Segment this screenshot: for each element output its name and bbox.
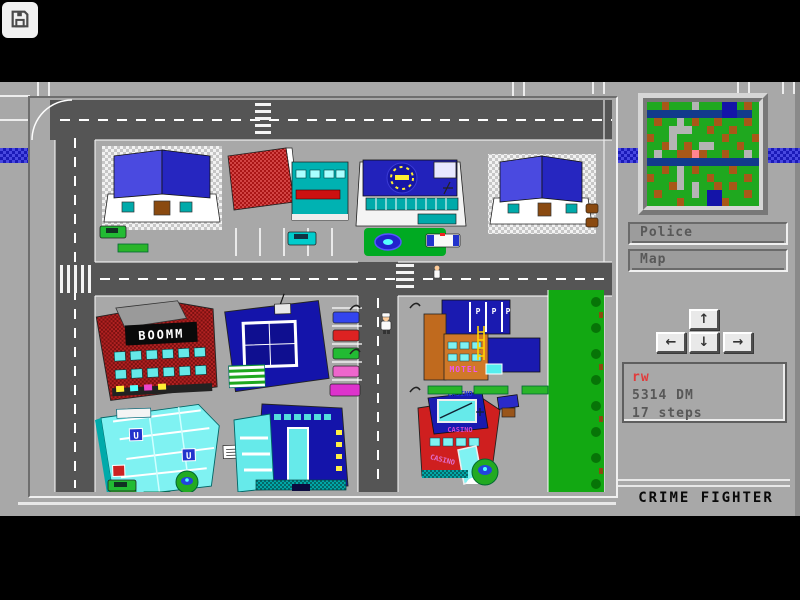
- parking-marker: P: [476, 307, 481, 316]
- building-hotel-east: [488, 154, 596, 234]
- game-title: CRIME FIGHTER: [618, 490, 794, 506]
- status-box: rw 5314 DM 17 steps: [622, 362, 787, 423]
- motel-sign: MOTEL: [449, 365, 478, 374]
- floppy-disk-icon: [9, 8, 31, 33]
- police-button-label: Police: [632, 225, 784, 243]
- parking-marker: P: [492, 307, 497, 316]
- building-hotel-west: [102, 146, 222, 230]
- emulator-screen: ›: [0, 0, 800, 600]
- map-button[interactable]: Map: [628, 249, 788, 272]
- dpad-right-button[interactable]: →: [723, 332, 753, 353]
- building-boomm: BOOMM: [96, 299, 218, 401]
- minimap-inner: [643, 98, 763, 210]
- panel-line: [600, 479, 790, 481]
- pipe-decoration: [782, 82, 795, 94]
- save-button[interactable]: [2, 2, 38, 38]
- dpad-left-button[interactable]: ←: [656, 332, 686, 353]
- fountain: [472, 459, 498, 485]
- arrow-up-icon: ↑: [699, 312, 710, 327]
- arrow-down-icon: ↓: [699, 335, 710, 350]
- minimap: [647, 102, 759, 206]
- svg-text:U: U: [186, 452, 192, 462]
- building-dept-store: [234, 404, 348, 492]
- arrow-right-icon: →: [733, 335, 744, 350]
- fountain: [176, 471, 198, 492]
- pipe-decoration: [0, 95, 30, 97]
- arrow-left-icon: ←: [666, 335, 677, 350]
- minimap-frame: [638, 93, 768, 215]
- pedestrian: [434, 266, 440, 278]
- game-panel: BOOMM: [0, 82, 800, 516]
- city-park: [548, 290, 604, 492]
- casino-sign: CASINO: [447, 426, 472, 434]
- police-car: [426, 233, 460, 247]
- subway-sign: U: [182, 449, 195, 462]
- boomm-sign: BOOMM: [138, 326, 185, 342]
- pipe-decoration: [592, 82, 605, 94]
- map-button-label: Map: [632, 252, 784, 270]
- player-name: rw: [632, 369, 785, 387]
- panel-line: [18, 502, 616, 505]
- subway-sign: U: [129, 428, 142, 441]
- dpad-up-button[interactable]: ↑: [689, 309, 719, 330]
- pipe-decoration: [0, 119, 30, 121]
- panel-line: [600, 485, 790, 487]
- money-value: 5314 DM: [632, 387, 785, 405]
- parking-marker: P: [506, 307, 511, 316]
- police-button[interactable]: Police: [628, 222, 788, 245]
- city-viewport[interactable]: BOOMM: [28, 96, 618, 498]
- dpad-down-button[interactable]: ↓: [689, 332, 719, 353]
- steps-value: 17 steps: [632, 405, 785, 423]
- building-police-station: [356, 160, 466, 256]
- svg-text:U: U: [133, 432, 139, 442]
